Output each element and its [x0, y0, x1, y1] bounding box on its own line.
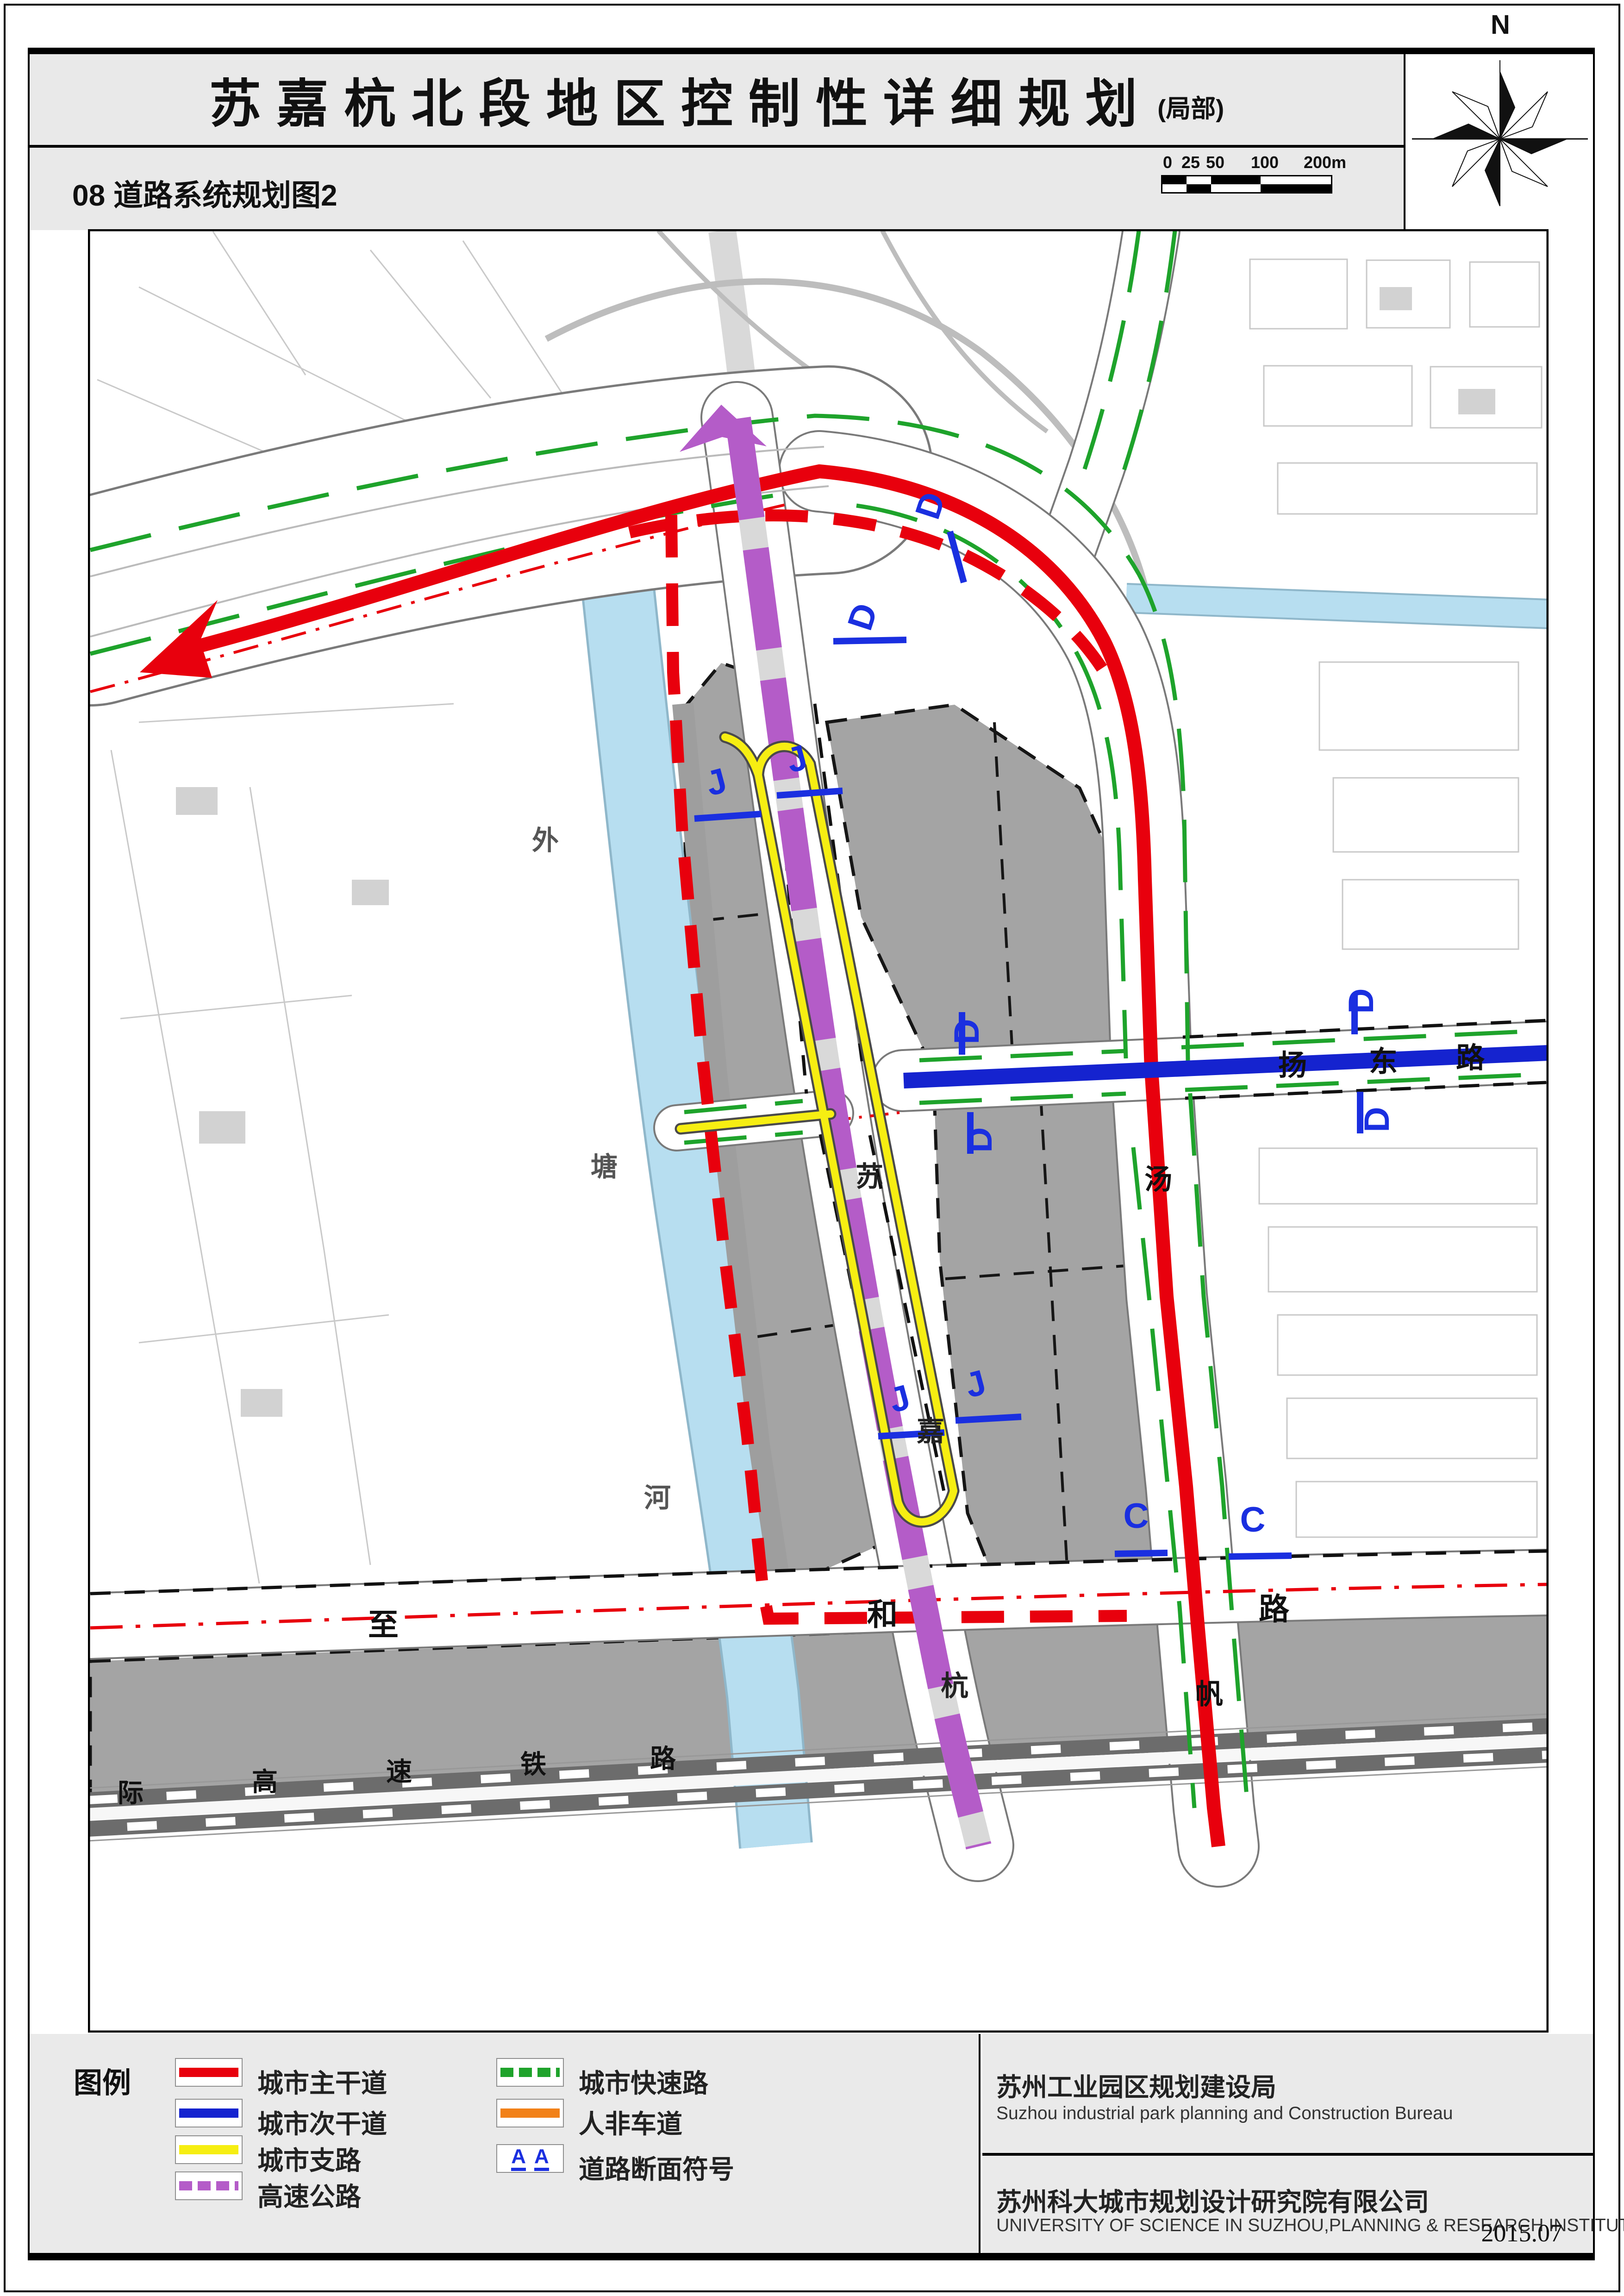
- svg-text:塘: 塘: [591, 1152, 618, 1182]
- svg-text:D: D: [960, 1127, 999, 1153]
- legend-swatch-expressway: [496, 2058, 564, 2087]
- legend-swatch-highway: [175, 2171, 243, 2200]
- legend-title: 图例: [74, 2059, 131, 2101]
- svg-text:D: D: [1357, 1107, 1397, 1132]
- river-east: [1126, 598, 1549, 614]
- svg-text:嘉: 嘉: [917, 1416, 944, 1447]
- bureau-name-cn: 苏州工业园区规划建设局: [996, 2066, 1276, 2103]
- header-top-rule: [28, 48, 1595, 54]
- scale-tick: 200m: [1304, 153, 1346, 172]
- legend-label: 人非车道: [579, 2103, 682, 2141]
- scale-tick: 0: [1163, 153, 1172, 172]
- bureau-name-en: Suzhou industrial park planning and Cons…: [996, 2103, 1453, 2124]
- legend-label: 城市次干道: [257, 2103, 387, 2141]
- svg-text:外: 外: [532, 826, 559, 856]
- section-symbol-letter: A: [511, 2146, 526, 2171]
- svg-text:路: 路: [1259, 1592, 1290, 1626]
- svg-text:C: C: [1240, 1500, 1266, 1539]
- legend-label: 道路断面符号: [579, 2149, 734, 2186]
- page-title: 苏嘉杭北段地区控制性详细规划: [209, 62, 1153, 137]
- scale-tick: 100: [1251, 153, 1279, 172]
- left-rule: [28, 48, 30, 2260]
- scalebar: 0 25 50 100 200m: [1161, 153, 1337, 204]
- legend-label: 高速公路: [257, 2176, 361, 2214]
- legend-label: 城市支路: [257, 2140, 361, 2177]
- svg-text:路: 路: [1456, 1042, 1485, 1074]
- legend-label: 城市主干道: [257, 2063, 387, 2100]
- legend-swatch-main-road: [175, 2058, 243, 2087]
- svg-text:苏: 苏: [856, 1161, 883, 1192]
- sheet-subtitle: 08 道路系统规划图2: [72, 172, 337, 214]
- svg-text:杭: 杭: [941, 1670, 968, 1702]
- credits-divider: [982, 2153, 1593, 2156]
- svg-text:东: 东: [1369, 1046, 1398, 1078]
- legend-panel: 图例 城市主干道 城市次干道 城市支路 高速公路 城市快速路 人非车道 A A …: [30, 2034, 981, 2253]
- scale-bar-strip: [1161, 175, 1332, 194]
- bottom-rule: [28, 2253, 1595, 2260]
- institute-name-cn: 苏州科大城市规划设计研究院有限公司: [996, 2181, 1429, 2218]
- map-canvas: D D D D D D J J J J C C 外 塘 河 苏 嘉 杭: [88, 229, 1549, 2033]
- page-title-suffix: (局部): [1157, 88, 1224, 125]
- svg-text:速: 速: [386, 1757, 412, 1786]
- header-title-band: 苏嘉杭北段地区控制性详细规划 (局部): [30, 54, 1404, 145]
- svg-text:D: D: [1342, 988, 1381, 1014]
- svg-text:高: 高: [252, 1767, 278, 1796]
- credits-panel: 苏州工业园区规划建设局 Suzhou industrial park plann…: [982, 2034, 1593, 2253]
- legend-swatch-nonmotor-lane: [496, 2099, 564, 2127]
- svg-text:至: 至: [368, 1608, 399, 1642]
- right-rule: [1593, 48, 1595, 2260]
- svg-text:路: 路: [650, 1744, 676, 1773]
- date-label: 2015.07: [1481, 2219, 1563, 2247]
- svg-text:帆: 帆: [1195, 1679, 1223, 1710]
- legend-swatch-secondary-road: [175, 2099, 243, 2127]
- compass-rose-icon: [1412, 60, 1588, 222]
- north-label: N: [1480, 9, 1521, 40]
- scale-tick: 25: [1181, 153, 1200, 172]
- legend-swatch-section-symbol: A A: [496, 2144, 564, 2173]
- svg-text:和: 和: [867, 1597, 898, 1632]
- svg-text:铁: 铁: [520, 1750, 546, 1779]
- scale-tick: 50: [1206, 153, 1224, 172]
- legend-swatch-branch-road: [175, 2135, 243, 2164]
- svg-text:扬: 扬: [1278, 1050, 1307, 1082]
- svg-text:C: C: [1124, 1496, 1149, 1536]
- svg-text:汤: 汤: [1144, 1164, 1172, 1195]
- section-symbol-letter: A: [534, 2146, 549, 2171]
- svg-text:D: D: [840, 599, 886, 635]
- legend-label: 城市快速路: [579, 2063, 708, 2100]
- svg-text:D: D: [947, 1019, 987, 1045]
- svg-text:河: 河: [644, 1483, 671, 1513]
- block: [827, 705, 1135, 1065]
- svg-text:际: 际: [118, 1778, 144, 1808]
- sheet: 苏嘉杭北段地区控制性详细规划 (局部) 08 道路系统规划图2 0 25 50 …: [0, 0, 1624, 2296]
